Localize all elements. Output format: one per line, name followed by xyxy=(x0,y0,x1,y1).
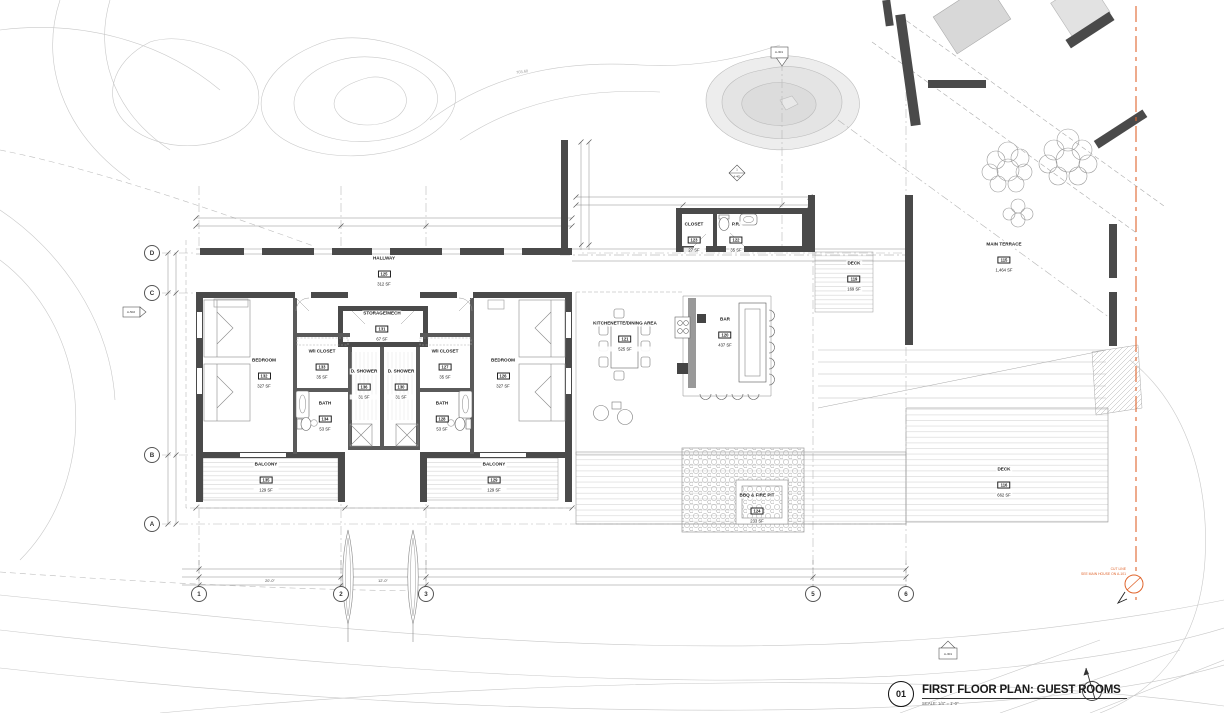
marker-left-section: A-502 xyxy=(127,310,135,314)
room-label-deck-right: DECK116662 SF xyxy=(996,467,1012,498)
drawing-scale: SCALE: 1/4" = 1'-0" xyxy=(922,701,1127,706)
floor-plan-sheet: HALLWAY125312 SF STORAGE/MECH13167 SF D.… xyxy=(0,0,1224,713)
grid-bubble-column-2: 2 xyxy=(333,586,349,602)
room-label-deck-upper: DECK119169 SF xyxy=(846,261,862,292)
cypress-trees xyxy=(343,530,419,642)
room-label-shower-right: D. SHOWER13031 SF xyxy=(387,369,416,400)
cut-line-note: CUT LINE SEE MAIN HOUSE ON A-101 xyxy=(1038,567,1126,577)
main-house-partial xyxy=(838,0,1164,415)
room-label-pr: P.R.12235 SF xyxy=(729,222,742,253)
room-label-kitchenette: KITCHENETTE/DINING AREA121525 SF xyxy=(592,321,658,352)
drawing-number-bubble: 01 xyxy=(888,681,914,707)
grid-bubble-column-1: 1 xyxy=(191,586,207,602)
room-label-bedroom-left: BEDROOM132327 SF xyxy=(251,358,277,389)
dimension-bay-2-3: 12'-0" xyxy=(377,579,390,583)
dimension-bay-1-2: 20'-0" xyxy=(264,579,277,583)
room-label-wi-closet-left: W/I CLOSET13335 SF xyxy=(308,349,337,380)
cut-line xyxy=(1118,6,1143,603)
grid-bubble-column-5: 5 xyxy=(805,586,821,602)
tree-1 xyxy=(982,142,1032,192)
grid-bubble-row-c: C xyxy=(144,285,160,301)
room-label-bedroom-right: BEDROOM126327 SF xyxy=(490,358,516,389)
drawing-title: FIRST FLOOR PLAN: GUEST ROOMS xyxy=(922,681,1127,699)
floor-plan-drawing xyxy=(0,0,1224,713)
marker-bottom-section: A-301 xyxy=(944,652,952,656)
marker-detail-sheet: A-401 xyxy=(733,176,740,179)
room-label-balcony-right: BALCONY129129 SF xyxy=(482,462,507,493)
room-label-wi-closet-right: W/I CLOSET12735 SF xyxy=(431,349,460,380)
room-label-bbq-fire-pit: BBQ & FIRE PIT124233 SF xyxy=(739,493,776,524)
grid-bubble-row-a: A xyxy=(144,516,160,532)
room-label-bath-left: BATH13453 SF xyxy=(318,401,332,432)
marker-detail-number: 1 xyxy=(736,169,738,172)
room-label-hallway: HALLWAY125312 SF xyxy=(372,256,396,287)
marker-pond-section: A-301 xyxy=(775,50,783,54)
title-block: 01 FIRST FLOOR PLAN: GUEST ROOMS SCALE: … xyxy=(888,681,1127,707)
room-label-bar: BAR120437 SF xyxy=(717,317,733,348)
trees xyxy=(982,129,1097,227)
room-label-balcony-left: BALCONY135129 SF xyxy=(254,462,279,493)
room-label-main-terrace: MAIN TERRACE1151,464 SF xyxy=(985,242,1022,273)
room-label-shower-left: D. SHOWER13631 SF xyxy=(350,369,379,400)
room-label-storage-mech: STORAGE/MECH13167 SF xyxy=(362,311,401,342)
grid-bubble-column-6: 6 xyxy=(898,586,914,602)
grid-bubble-column-3: 3 xyxy=(418,586,434,602)
pond xyxy=(706,56,859,150)
terrace-steps xyxy=(818,350,1106,408)
tree-3 xyxy=(1003,199,1033,227)
cut-line-reference: SEE MAIN HOUSE ON A-101 xyxy=(1038,572,1126,577)
grid-bubble-row-d: D xyxy=(144,245,160,261)
grid-bubble-row-b: B xyxy=(144,447,160,463)
tree-2 xyxy=(1039,129,1097,185)
room-label-bath-right: BATH12853 SF xyxy=(435,401,449,432)
room-label-closet: CLOSET12327 SF xyxy=(684,222,705,253)
